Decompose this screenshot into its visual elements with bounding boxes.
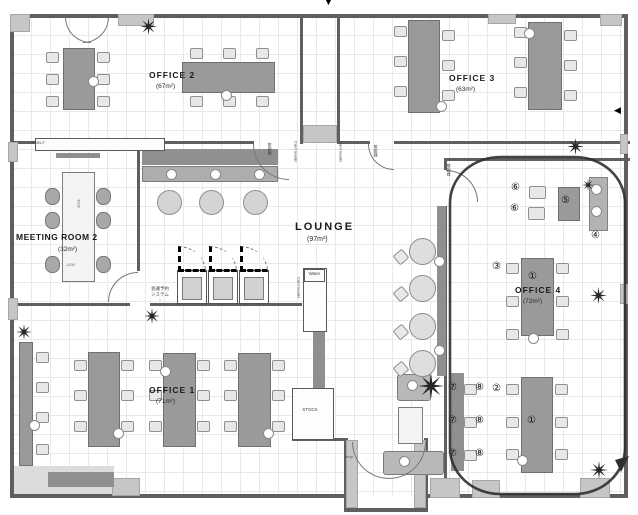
wall-marker-arrow-icon: ◀: [614, 105, 621, 115]
room-label-office4: OFFICE 4: [515, 286, 561, 296]
labels-layer: OFFICE 2 (67m²) OFFICE 3 (63m²) MEETING …: [0, 0, 638, 515]
marker-5: ⑤: [561, 196, 570, 206]
room-area-meeting-room2: (32m²): [58, 246, 77, 253]
floor-plan: OFFICE 2 (67m²) OFFICE 3 (63m²) MEETING …: [0, 0, 638, 515]
card-reader-label: Card reader: [296, 277, 301, 298]
room-area-office3: (63m²): [456, 86, 475, 93]
meeting-reservation-note: 会議予約 システム ↓: [142, 286, 178, 303]
marker-4: ④: [591, 231, 600, 241]
table-dimension-width: 1200: [66, 263, 75, 268]
marker-6: ⑥: [511, 183, 520, 193]
alarm-label: 警報器: [267, 143, 272, 155]
stock-room-label: STOCK: [294, 407, 326, 412]
card-reader-label: Card reader: [338, 141, 343, 162]
room-label-lounge: LOUNGE: [295, 221, 354, 234]
marker-1: ①: [528, 272, 537, 282]
room-area-office4: (72m²): [523, 298, 542, 305]
card-reader-label: Card reader: [293, 141, 298, 162]
marker-1: ①: [527, 416, 536, 426]
marker-8: ⑧: [475, 383, 484, 393]
marker-2: ②: [492, 384, 501, 394]
room-area-office1: (71m²): [156, 398, 175, 405]
room-area-lounge: (97m²): [307, 236, 328, 244]
room-label-meeting-room2: MEETING ROOM 2: [16, 233, 98, 243]
room-area-office2: (67m²): [156, 83, 175, 90]
entrance-arrow-icon: ▼: [324, 0, 333, 7]
shelf-label: SHELF: [32, 141, 45, 146]
down-arrow-icon: ↓: [142, 297, 178, 303]
water-server-label: Water: [305, 271, 324, 276]
room-label-office2: OFFICE 2: [149, 71, 195, 81]
alarm-label: 警報器: [373, 145, 378, 157]
alarm-label: 警報器: [446, 164, 451, 176]
marker-7: ⑦: [448, 383, 457, 393]
marker-7: ⑦: [448, 449, 457, 459]
marker-6: ⑥: [510, 204, 519, 214]
drop-label: drop: [345, 455, 353, 460]
marker-7: ⑦: [448, 416, 457, 426]
room-label-office3: OFFICE 3: [449, 74, 495, 84]
marker-8: ⑧: [475, 449, 484, 459]
marker-3: ③: [492, 262, 501, 272]
room-label-office1: OFFICE 1: [149, 386, 195, 396]
table-dimension-length: 4200: [76, 199, 81, 208]
marker-8: ⑧: [475, 416, 484, 426]
